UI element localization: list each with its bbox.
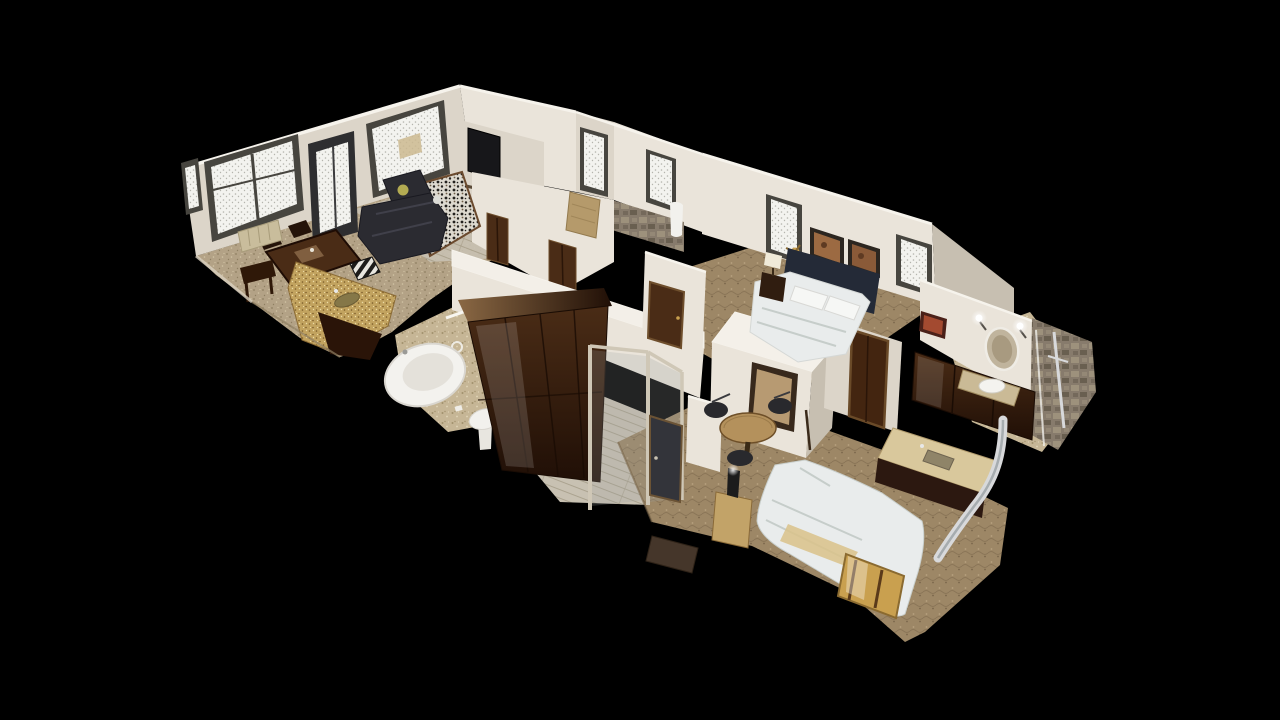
- hanging-robe: [670, 202, 683, 237]
- glass-front-door: [308, 131, 358, 245]
- slate-entry-door: [650, 416, 682, 502]
- viewer-stage: [0, 0, 1280, 720]
- hall-window-1: [580, 127, 608, 197]
- master-door-left: [648, 282, 684, 348]
- dollhouse-3d-view[interactable]: [0, 0, 1280, 720]
- interior-door-1: [487, 213, 508, 265]
- accent-pillow: [398, 185, 409, 196]
- tub-faucet: [403, 350, 408, 355]
- kitchen-faucet: [920, 444, 924, 448]
- bar-faucet: [334, 289, 338, 293]
- white-pillow: [433, 196, 441, 204]
- wicker-chair: [566, 192, 600, 238]
- master-door-right: [849, 330, 888, 428]
